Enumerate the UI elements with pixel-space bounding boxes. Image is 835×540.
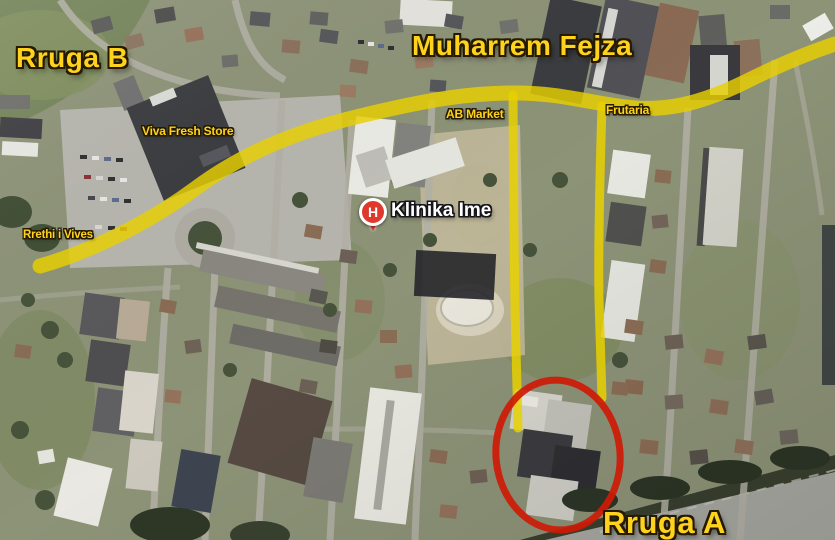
street-label-rruga-b: Rruga B <box>16 44 128 72</box>
annotated-satellite-map: H Rruga B Muharrem Fejza Viva Fresh Stor… <box>0 0 835 540</box>
poi-label-ab-market: AB Market <box>446 108 504 120</box>
route-highlight-side-street-west <box>513 95 518 428</box>
hospital-icon-letter: H <box>368 205 378 219</box>
poi-label-frutaria: Frutaria <box>606 104 649 116</box>
hospital-icon: H <box>359 198 387 226</box>
poi-label-rrethi-i-vives: Rrethi i Vives <box>23 230 93 242</box>
route-highlight-side-street-east <box>599 106 602 398</box>
poi-label-viva-fresh-store: Viva Fresh Store <box>142 125 233 137</box>
clinic-pin-marker: H <box>359 198 387 234</box>
street-label-muharrem-fejza: Muharrem Fejza <box>412 32 632 60</box>
clinic-label: Klinika Ime <box>391 201 491 220</box>
satellite-imagery <box>0 0 835 540</box>
street-label-rruga-a: Rruga A <box>603 507 726 538</box>
